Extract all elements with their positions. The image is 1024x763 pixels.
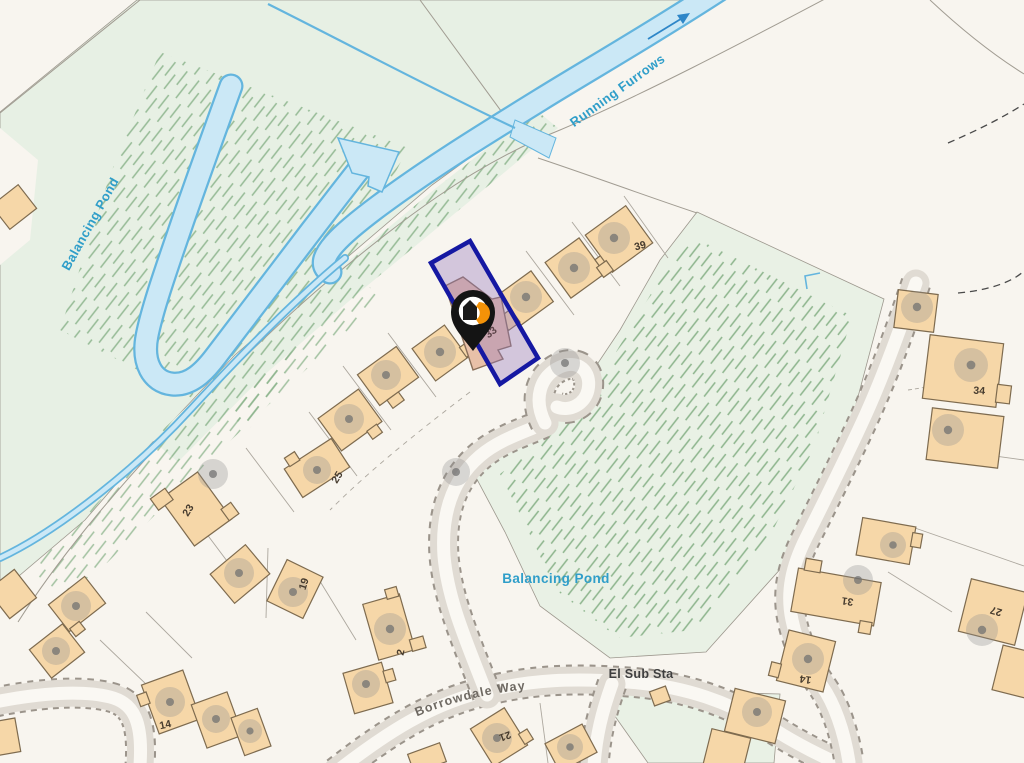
property-map[interactable]: 39 33 25 23 19 2 14 21 34 31 27 14 Balan…	[0, 0, 1024, 763]
house-number: 14	[799, 672, 812, 686]
tree-icon	[224, 558, 254, 588]
tree-icon	[334, 404, 364, 434]
tree-icon	[374, 613, 406, 645]
tree-icon	[198, 459, 228, 489]
pond-label-se: Balancing Pond	[502, 571, 610, 586]
map-canvas[interactable]: 39 33 25 23 19 2 14 21 34 31 27 14 Balan…	[0, 0, 1024, 763]
tree-icon	[510, 281, 542, 313]
tree-icon	[901, 291, 933, 323]
tree-icon	[792, 643, 824, 675]
tree-icon	[352, 670, 380, 698]
tree-icon	[442, 458, 470, 486]
tree-icon	[557, 734, 583, 760]
tree-icon	[880, 532, 906, 558]
tree-icon	[424, 336, 456, 368]
tree-icon	[303, 456, 331, 484]
tree-icon	[966, 614, 998, 646]
tree-icon	[598, 222, 630, 254]
tree-icon	[932, 414, 964, 446]
tree-icon	[843, 565, 873, 595]
tree-icon	[202, 705, 230, 733]
tree-icon	[155, 687, 185, 717]
tree-icon	[238, 719, 262, 743]
tree-icon	[550, 348, 580, 378]
substation-label: El Sub Sta	[609, 667, 675, 681]
tree-icon	[558, 252, 590, 284]
tree-icon	[42, 637, 70, 665]
house-number: 34	[973, 385, 986, 398]
house-number: 31	[841, 594, 854, 608]
tree-icon	[954, 348, 988, 382]
tree-icon	[61, 591, 91, 621]
tree-icon	[371, 360, 401, 390]
tree-icon	[742, 697, 772, 727]
